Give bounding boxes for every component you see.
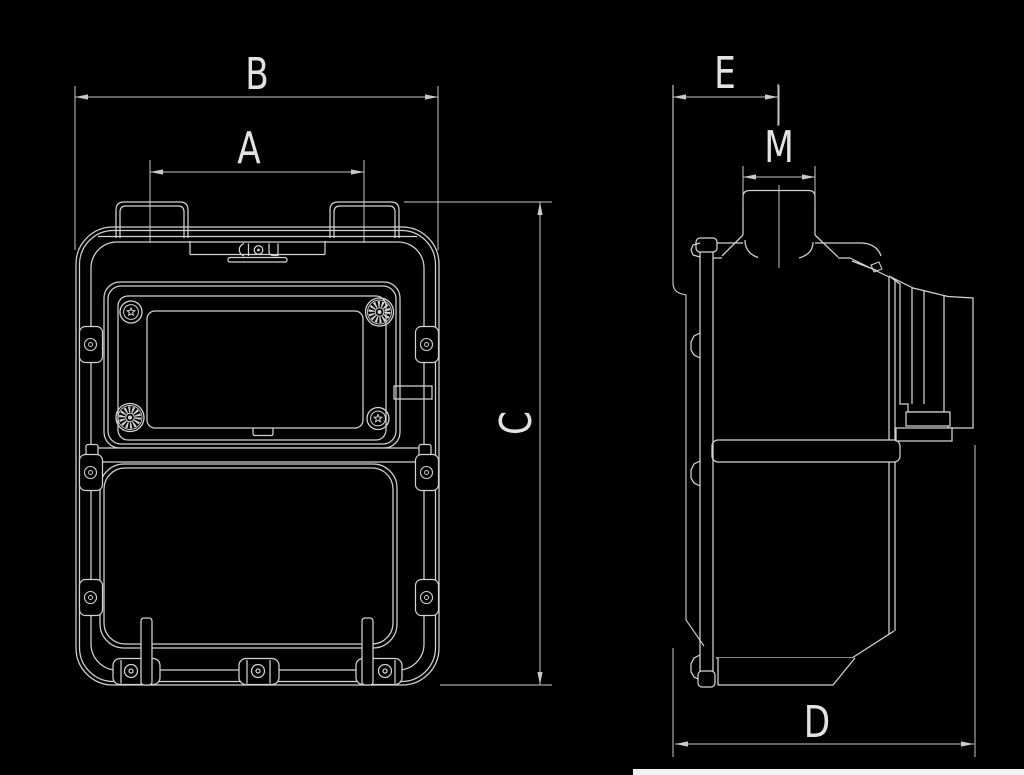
front-mounting-lugs xyxy=(116,202,399,255)
screw-top-right-knurled xyxy=(366,298,394,326)
front-bottom-clips xyxy=(113,618,402,685)
front-register-cover xyxy=(104,282,432,448)
screw-bottom-left-knurled xyxy=(116,404,144,432)
meter-dimension-drawing: B A C E M D xyxy=(0,0,1024,775)
side-bottom-foot xyxy=(718,658,855,685)
side-register-housing xyxy=(889,276,973,441)
screw-bottom-right xyxy=(367,408,389,430)
front-seal-bracket xyxy=(228,244,287,263)
label-A: A xyxy=(237,123,260,174)
screw-top-left xyxy=(120,301,142,323)
bottom-edge-strip xyxy=(633,769,1024,775)
drawing-canvas: B A C E M D xyxy=(0,0,1024,775)
front-view xyxy=(76,202,439,685)
side-seam-band xyxy=(712,440,900,462)
index-window xyxy=(147,311,363,428)
side-pipe-stub xyxy=(722,191,838,259)
front-cover-screws xyxy=(116,298,394,432)
front-side-tabs xyxy=(80,327,439,616)
side-view xyxy=(673,85,973,687)
label-B: B xyxy=(245,49,269,100)
side-front-face xyxy=(673,85,704,646)
label-E: E xyxy=(714,48,736,99)
label-D: D xyxy=(804,697,830,748)
label-C: C xyxy=(491,411,542,435)
side-body-shell xyxy=(713,243,895,685)
side-mounting-plate xyxy=(691,238,717,687)
dimension-labels: B A C E M D xyxy=(237,48,830,748)
label-M: M xyxy=(764,122,794,173)
front-seam-band xyxy=(86,445,431,466)
index-window-notch xyxy=(253,428,273,436)
